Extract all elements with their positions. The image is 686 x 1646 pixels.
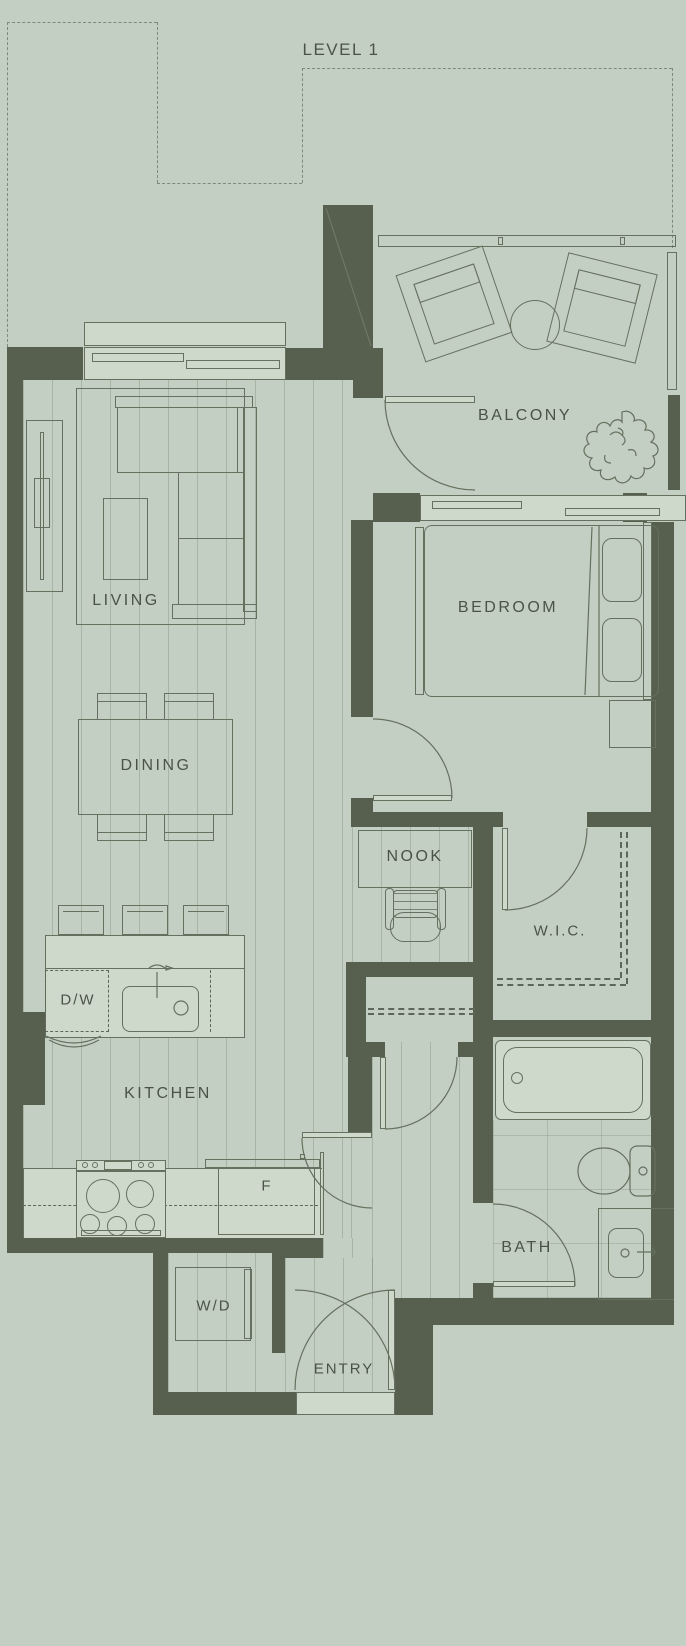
- closet-door-arc: [385, 1057, 457, 1129]
- room-label-living: LIVING: [92, 592, 159, 610]
- appliance-label-washer-dryer: W/D: [196, 1298, 231, 1315]
- toilet-flush: [639, 1167, 647, 1175]
- room-label-nook: NOOK: [386, 848, 443, 866]
- room-label-kitchen: KITCHEN: [124, 1085, 212, 1103]
- room-label-wic: W.I.C.: [534, 923, 587, 940]
- wic-door-arc: [505, 828, 587, 910]
- room-label-entry: ENTRY: [314, 1361, 375, 1378]
- shear-diagonal: [326, 208, 371, 346]
- bath-faucet: [637, 1248, 655, 1256]
- bedroom-door-arc: [373, 719, 452, 798]
- balcony-door-arc: [385, 400, 475, 490]
- dishwasher-front: [46, 1036, 101, 1047]
- sink-drain: [174, 1001, 188, 1015]
- tree-canopy: [584, 411, 658, 483]
- floor-plan: LEVEL 1: [0, 0, 686, 1646]
- room-label-dining: DINING: [121, 757, 192, 775]
- kitchen-door-arc: [302, 1138, 372, 1208]
- island-faucet: [149, 965, 172, 998]
- tree-detail: [605, 428, 636, 463]
- appliance-label-dishwasher: D/W: [60, 992, 95, 1009]
- room-label-bath: BATH: [501, 1239, 552, 1257]
- room-label-bedroom: BEDROOM: [458, 599, 558, 617]
- bath-faucet-knob: [621, 1249, 629, 1257]
- bed-blanket-line: [585, 525, 599, 697]
- appliance-label-fridge: F: [261, 1178, 270, 1195]
- room-label-balcony: BALCONY: [478, 407, 572, 425]
- plan-linework: [0, 0, 686, 1646]
- toilet-bowl: [578, 1148, 630, 1194]
- toilet-tank: [630, 1146, 655, 1196]
